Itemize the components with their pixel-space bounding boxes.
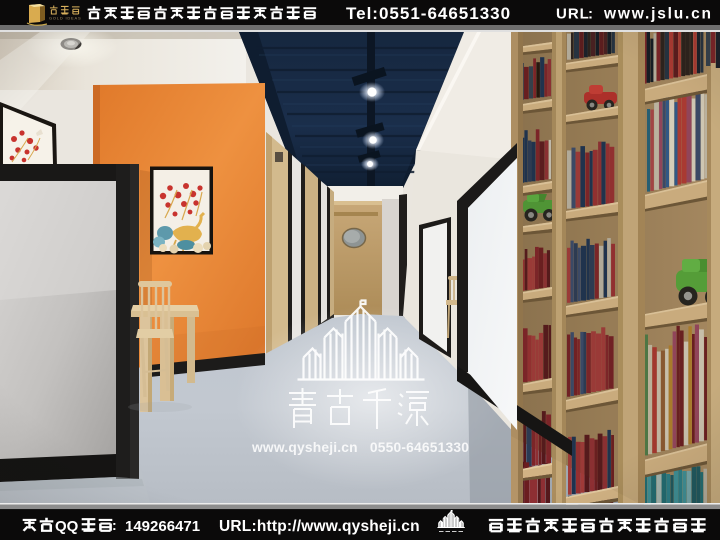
svg-text::: :	[112, 517, 117, 533]
svg-text:URL:http://www.qysheji.cn: URL:http://www.qysheji.cn	[219, 518, 420, 535]
svg-text:149266471: 149266471	[125, 518, 200, 535]
svg-text:GOLD IDEAS: GOLD IDEAS	[49, 16, 81, 21]
svg-text:www.jslu.cn: www.jslu.cn	[603, 6, 713, 23]
svg-text:Tel:0551-64651330: Tel:0551-64651330	[346, 4, 511, 23]
svg-text:QQ: QQ	[55, 518, 79, 535]
svg-text:URL: URL	[556, 6, 590, 23]
svg-text::: :	[588, 6, 593, 23]
